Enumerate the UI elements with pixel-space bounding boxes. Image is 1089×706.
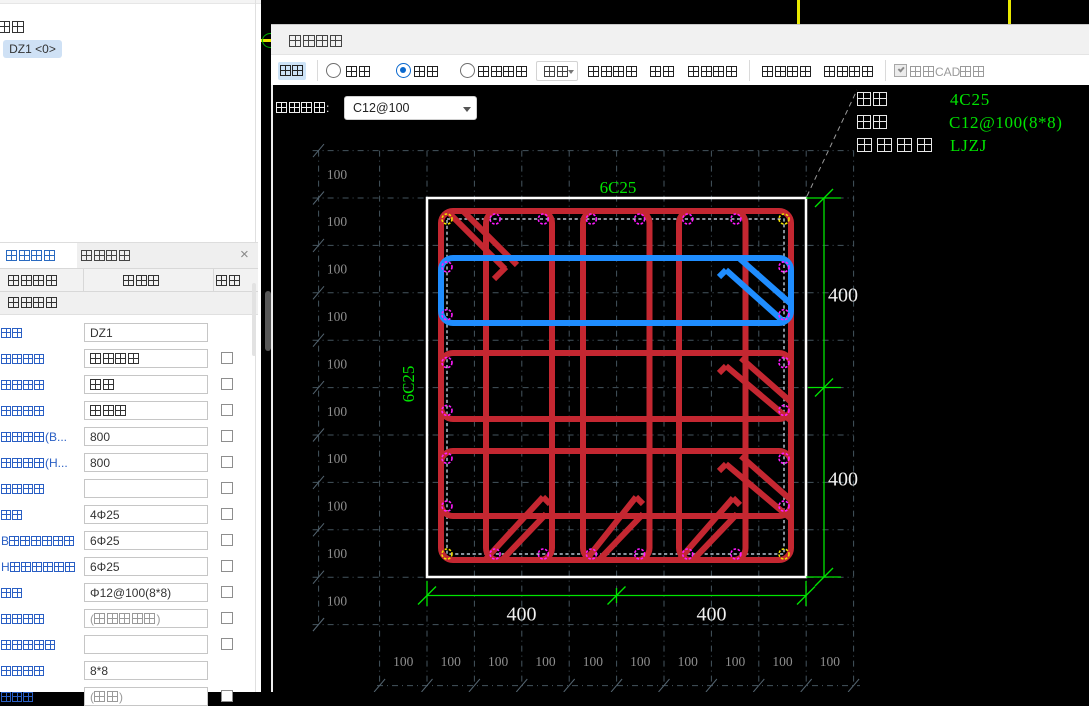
svg-text:6C25: 6C25 <box>600 178 637 197</box>
svg-text:4C25: 4C25 <box>950 90 990 109</box>
svg-text:100: 100 <box>327 309 348 324</box>
svg-text:100: 100 <box>327 546 348 561</box>
svg-text:100: 100 <box>327 451 348 466</box>
svg-text:100: 100 <box>630 654 651 669</box>
svg-text:400: 400 <box>828 285 858 307</box>
svg-text:100: 100 <box>488 654 509 669</box>
svg-text:6C25: 6C25 <box>399 366 418 403</box>
svg-text:100: 100 <box>678 654 699 669</box>
svg-text:C12@100(8*8): C12@100(8*8) <box>949 113 1063 132</box>
svg-text:400: 400 <box>828 469 858 491</box>
svg-text:100: 100 <box>393 654 414 669</box>
svg-text:100: 100 <box>327 499 348 514</box>
svg-text:100: 100 <box>327 404 348 419</box>
svg-text:100: 100 <box>327 262 348 277</box>
svg-text:100: 100 <box>772 654 793 669</box>
svg-text:100: 100 <box>327 214 348 229</box>
svg-text:100: 100 <box>441 654 462 669</box>
svg-text:100: 100 <box>583 654 604 669</box>
svg-text:400: 400 <box>697 604 727 626</box>
svg-text:100: 100 <box>535 654 556 669</box>
svg-text:100: 100 <box>820 654 841 669</box>
svg-text:100: 100 <box>327 593 348 608</box>
svg-text:100: 100 <box>725 654 746 669</box>
svg-text:LJZJ: LJZJ <box>950 136 987 155</box>
svg-text:100: 100 <box>327 356 348 371</box>
svg-text:400: 400 <box>507 604 537 626</box>
svg-text:100: 100 <box>327 167 348 182</box>
